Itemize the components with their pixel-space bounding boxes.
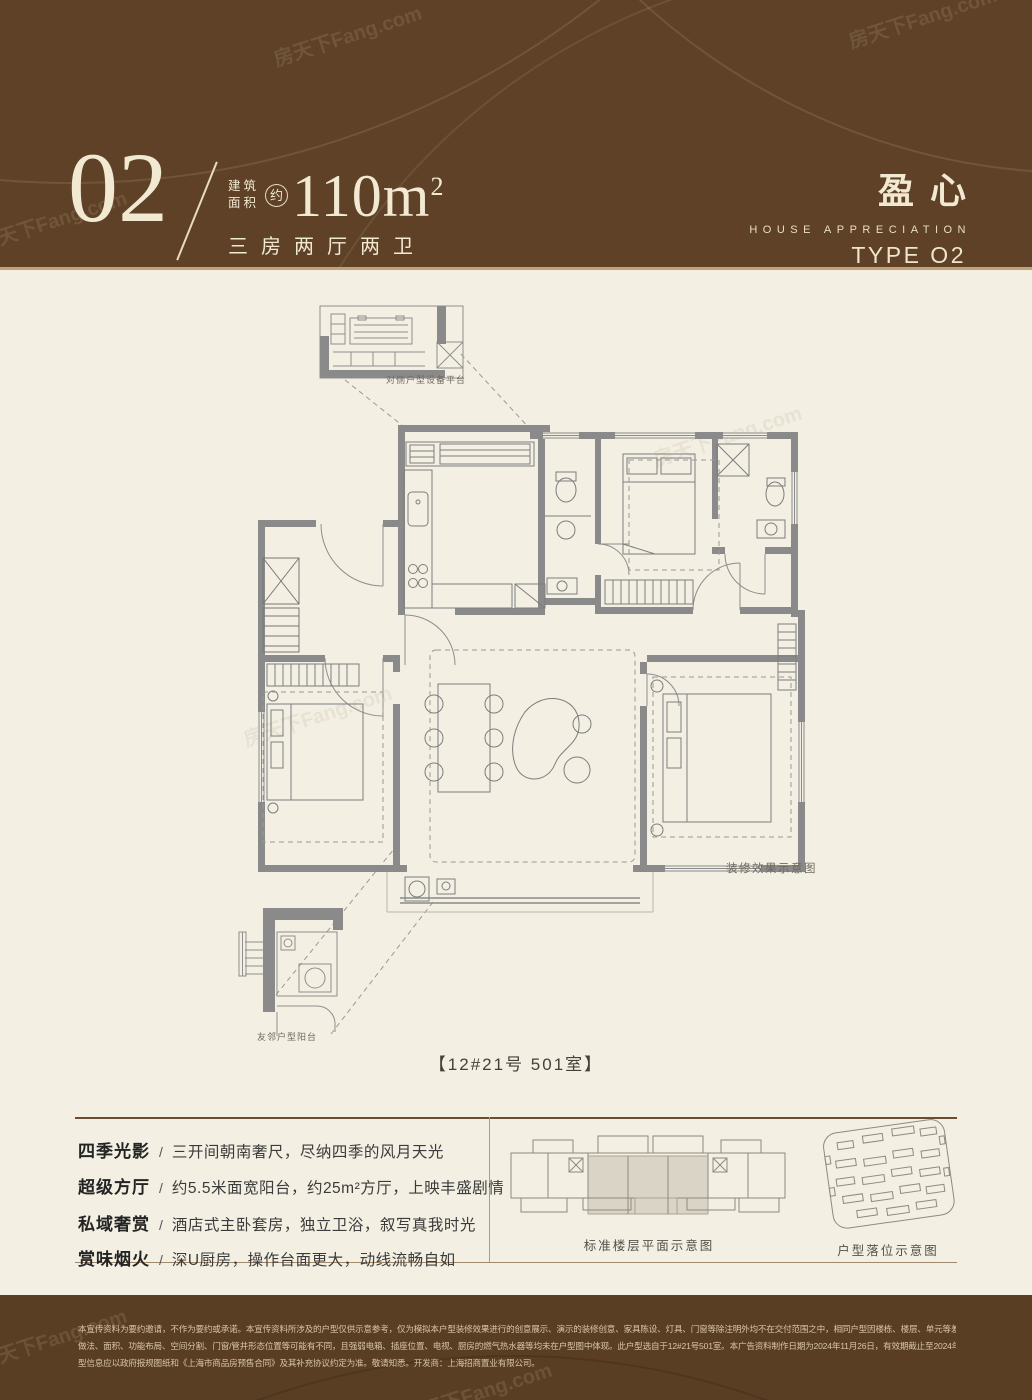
feature-separator: /: [159, 1252, 163, 1268]
feature-row: 四季光影 / 三开间朝南奢尺，尽纳四季的风月天光: [78, 1137, 444, 1162]
area-label: 建筑 面积: [228, 178, 259, 212]
room-configuration: 三房两厅两卫: [228, 230, 426, 259]
area-info: 建筑 面积 约 110m2: [228, 166, 444, 226]
site-plan-caption: 户型落位示意图: [806, 1240, 970, 1259]
feature-row: 赏味烟火 / 深U厨房，操作台面更大，动线流畅自如: [78, 1245, 456, 1270]
feature-description: 约5.5米面宽阳台，约25m²方厅，上映丰盛剧情: [172, 1176, 504, 1198]
feature-separator: /: [159, 1144, 163, 1160]
type-label: TYPE O2: [749, 242, 966, 267]
feature-separator: /: [159, 1217, 163, 1233]
equipment-platform-label: 对侧户型设备平台: [386, 373, 466, 386]
feature-description: 三开间朝南奢尺，尽纳四季的风月天光: [172, 1140, 444, 1162]
feature-title: 四季光影: [78, 1137, 150, 1162]
feature-title: 私域奢赏: [78, 1210, 150, 1235]
render-disclaimer-note: 装修效果示意图: [726, 860, 817, 876]
footer-band: 房天下Fang.com 房天下Fang.com 本宣传资料为要约邀请，不作为要约…: [0, 1295, 1032, 1400]
brand-block: 盈心 HOUSE APPRECIATION TYPE O2: [749, 162, 966, 267]
neighbor-balcony-label: 友邻户型阳台: [257, 1030, 317, 1043]
feature-title: 超级方厅: [78, 1173, 150, 1198]
standard-floor-caption: 标准楼层平面示意图: [503, 1235, 795, 1254]
disclaimer-line: 型信息应以政府报规图纸和《上海市商品房预售合同》及其补充协议约定为准。敬请知悉。…: [78, 1355, 956, 1372]
disclaimer-line: 本宣传资料为要约邀请，不作为要约或承诺。本宣传资料所涉及的户型仅供示意参考，仅为…: [78, 1321, 956, 1338]
brand-name: 盈心: [749, 162, 982, 214]
area-label-line1: 建筑: [228, 178, 259, 195]
area-value: 110m2: [292, 166, 444, 226]
brand-subtitle: HOUSE APPRECIATION: [749, 224, 971, 236]
header-band: 房天下Fang.com 房天下Fang.com 房天下Fang.com 02 建…: [0, 0, 1032, 267]
legal-disclaimer: 本宣传资料为要约邀请，不作为要约或承诺。本宣传资料所涉及的户型仅供示意参考，仅为…: [78, 1321, 956, 1372]
poster-page: 房天下Fang.com 房天下Fang.com 房天下Fang.com 02 建…: [0, 0, 1032, 1400]
area-label-line2: 面积: [228, 195, 259, 212]
standard-floor-diagram: [503, 1128, 795, 1228]
approx-badge: 约: [265, 184, 288, 207]
feature-title: 赏味烟火: [78, 1245, 150, 1270]
area-superscript: 2: [430, 172, 444, 201]
area-number: 110m: [292, 163, 430, 229]
gold-separator-line: [0, 267, 1032, 270]
feature-description: 酒店式主卧套房，独立卫浴，叙写真我时光: [172, 1213, 476, 1235]
unit-type-number: 02: [68, 138, 168, 238]
feature-row: 私域奢赏 / 酒店式主卧套房，独立卫浴，叙写真我时光: [78, 1210, 476, 1235]
unit-caption: 【12#21号 501室】: [0, 1050, 1032, 1075]
feature-description: 深U厨房，操作台面更大，动线流畅自如: [172, 1248, 456, 1270]
disclaimer-line: 做法、面积、功能布局、空间分割、门窗/管井形态位置等可能有不同，且强弱电箱、插座…: [78, 1338, 956, 1355]
feature-separator: /: [159, 1180, 163, 1196]
floor-plan-drawing: [225, 292, 815, 1052]
feature-row: 超级方厅 / 约5.5米面宽阳台，约25m²方厅，上映丰盛剧情: [78, 1173, 504, 1198]
site-plan-diagram: [806, 1114, 970, 1236]
